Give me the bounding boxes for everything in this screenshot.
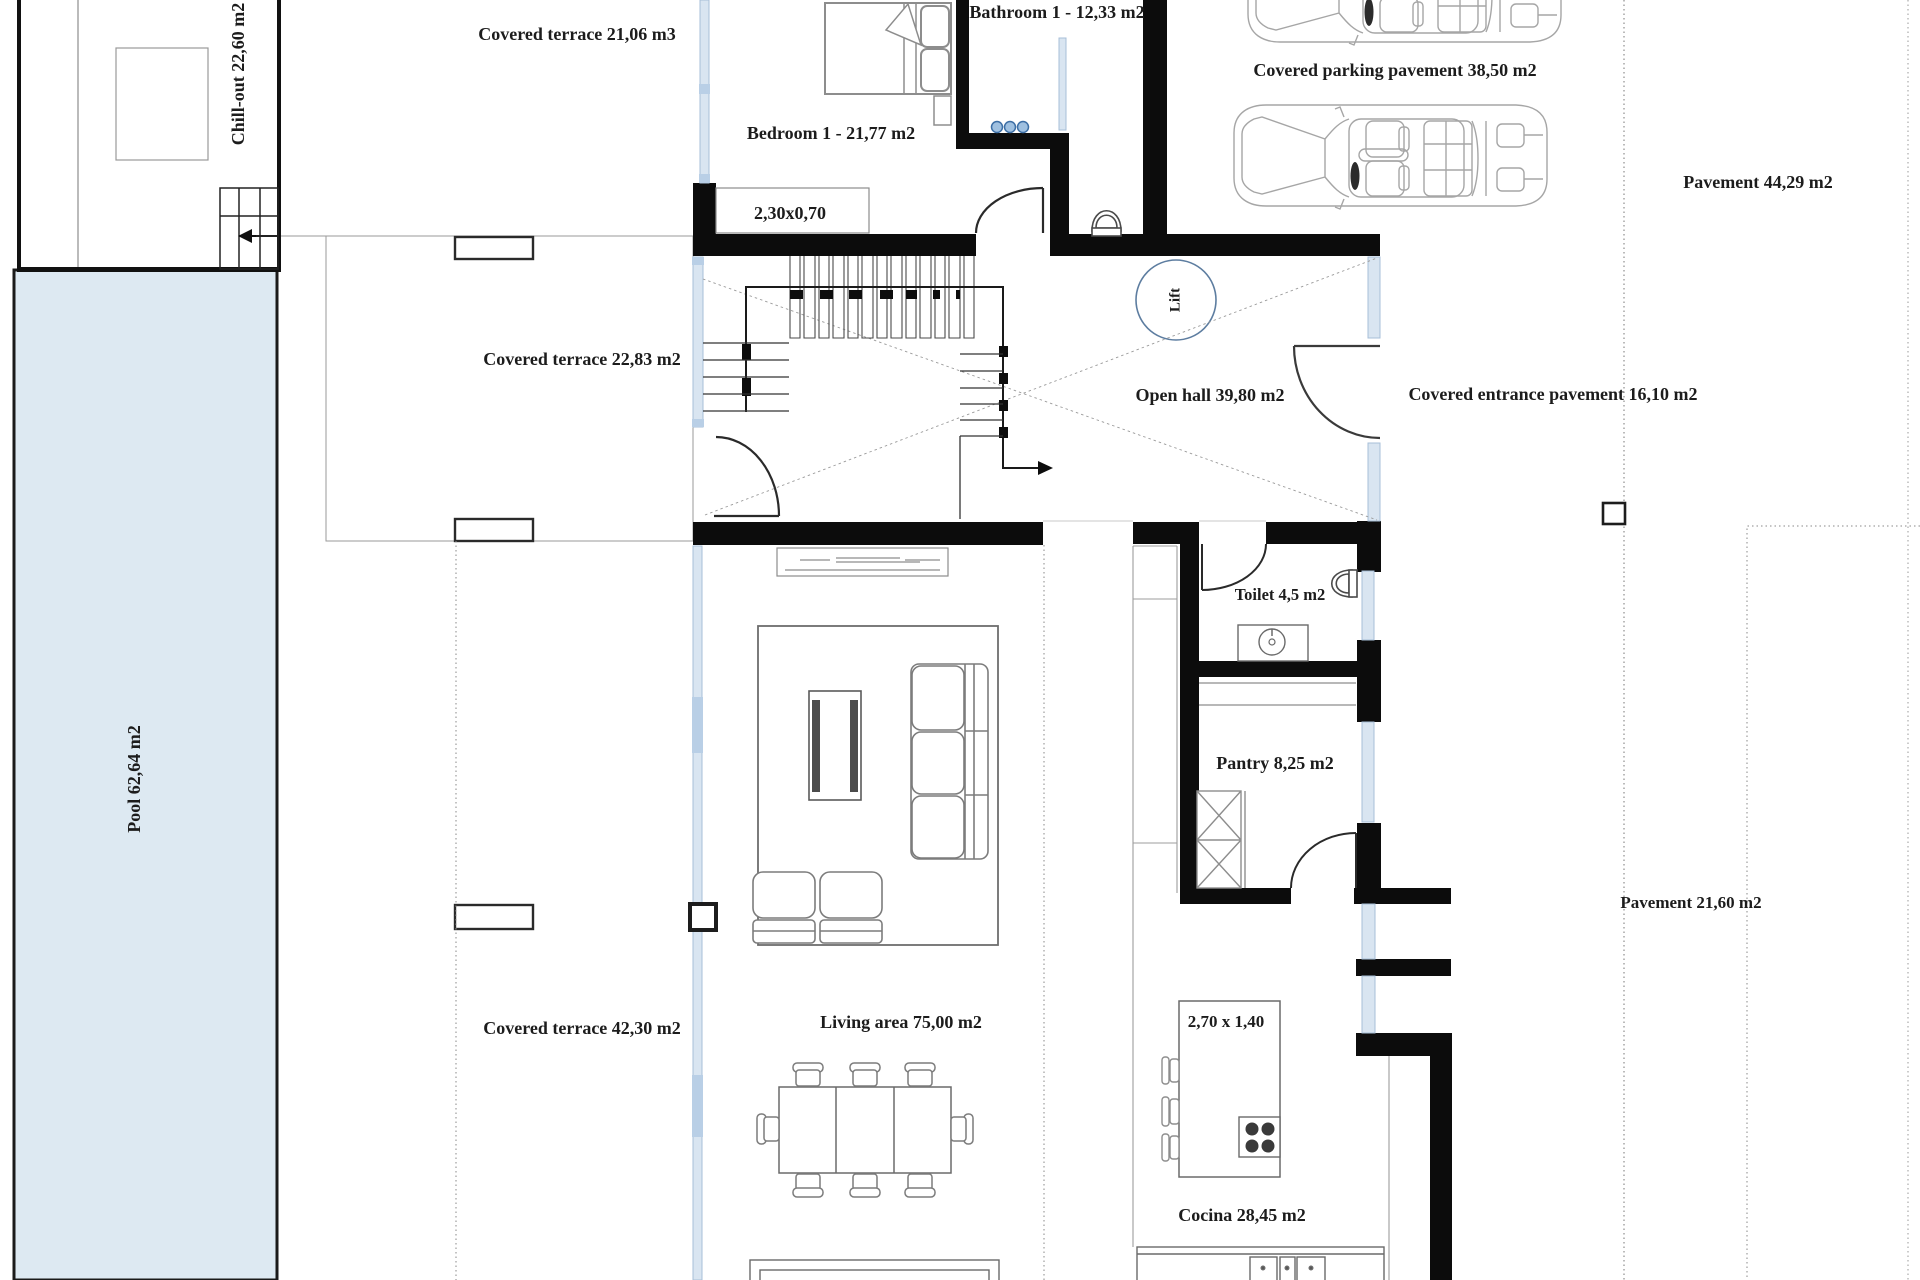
- svg-text:Living area 75,00 m2: Living area 75,00 m2: [820, 1012, 982, 1032]
- svg-text:Chill-out 22,60 m2: Chill-out 22,60 m2: [228, 3, 248, 146]
- svg-text:Covered terrace 21,06 m3: Covered terrace 21,06 m3: [478, 24, 676, 44]
- svg-text:Toilet 4,5 m2: Toilet 4,5 m2: [1235, 585, 1326, 604]
- svg-text:Pantry 8,25 m2: Pantry 8,25 m2: [1216, 753, 1333, 773]
- svg-text:Bedroom 1 - 21,77 m2: Bedroom 1 - 21,77 m2: [747, 123, 915, 143]
- svg-text:Pavement 44,29 m2: Pavement 44,29 m2: [1683, 172, 1832, 192]
- svg-text:Covered entrance pavement 16,1: Covered entrance pavement 16,10 m2: [1408, 384, 1697, 404]
- svg-text:Pavement 21,60 m2: Pavement 21,60 m2: [1620, 893, 1761, 912]
- svg-text:Cocina 28,45 m2: Cocina 28,45 m2: [1178, 1205, 1306, 1225]
- svg-text:Open hall 39,80 m2: Open hall 39,80 m2: [1135, 385, 1284, 405]
- svg-text:2,70 x 1,40: 2,70 x 1,40: [1188, 1012, 1265, 1031]
- svg-text:Lift: Lift: [1167, 288, 1183, 312]
- svg-text:Pool 62,64 m2: Pool 62,64 m2: [124, 725, 144, 833]
- svg-text:Covered terrace 42,30 m2: Covered terrace 42,30 m2: [483, 1018, 681, 1038]
- svg-text:2,30x0,70: 2,30x0,70: [754, 203, 826, 223]
- svg-text:Covered parking pavement 38,50: Covered parking pavement 38,50 m2: [1253, 60, 1536, 80]
- svg-text:Bathroom 1 - 12,33 m2: Bathroom 1 - 12,33 m2: [969, 2, 1144, 22]
- svg-text:Covered terrace 22,83 m2: Covered terrace 22,83 m2: [483, 349, 681, 369]
